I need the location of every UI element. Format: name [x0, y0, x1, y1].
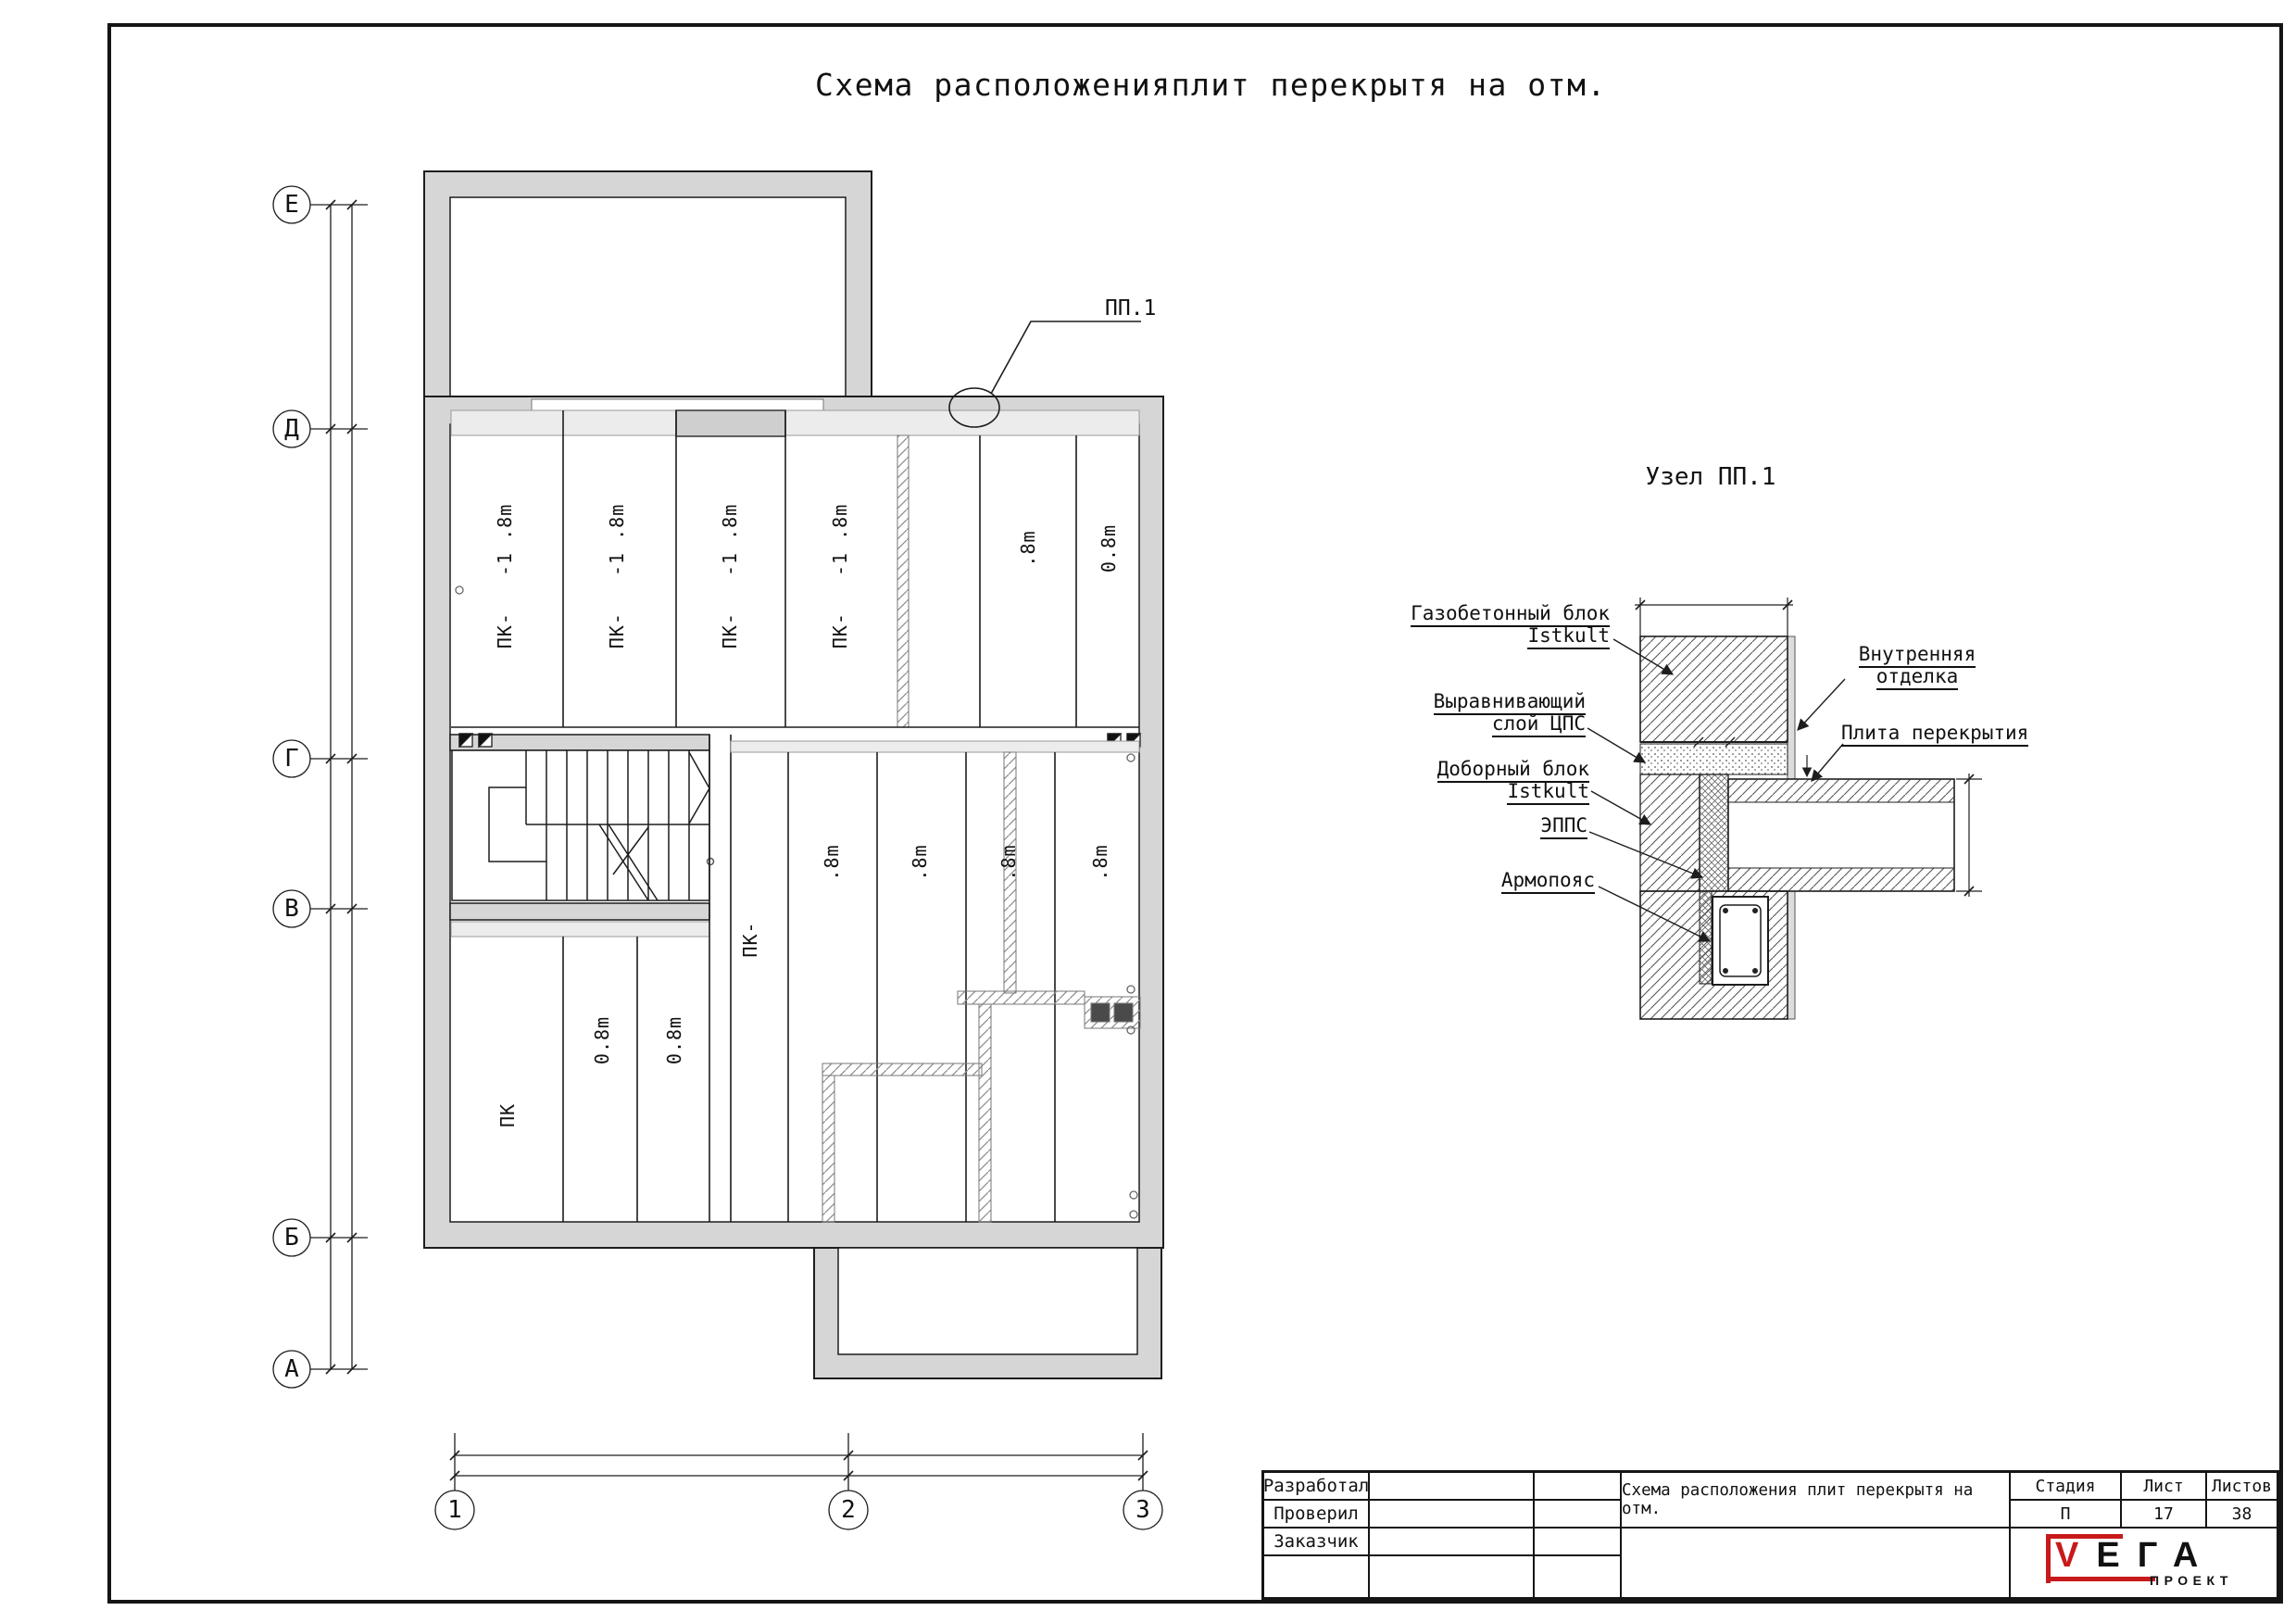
axis-col-2: 2	[828, 1491, 869, 1529]
slab-label: .8m	[909, 844, 931, 880]
vega-logo-v: V	[2055, 1536, 2096, 1575]
detail-label-armo: Армопояс	[1317, 869, 1595, 891]
axis-row-A: А	[271, 1351, 312, 1388]
vega-logo-underline	[2046, 1577, 2155, 1581]
tb-empty-cell	[1264, 1556, 1370, 1597]
axis-col-3: 3	[1123, 1491, 1163, 1529]
tb-developed-label: Разработал	[1264, 1473, 1370, 1501]
title-block: Разработал Проверил Заказчик Схема распо…	[1261, 1470, 2279, 1600]
slab-label: 0.8m	[1098, 524, 1120, 572]
tb-empty-cell	[1622, 1529, 2011, 1597]
slab-label: 0.8m	[663, 1016, 685, 1064]
vega-logo-rest: ЕГА	[2096, 1536, 2215, 1575]
detail-label-epps: ЭППС	[1310, 814, 1587, 837]
screed-layer	[1640, 744, 1788, 774]
tb-empty-cell	[1370, 1473, 1535, 1501]
axis-row-G: Г	[271, 740, 312, 777]
floor-plan	[424, 171, 1163, 1378]
detail-label-screed: Выравнивающий слой ЦПС	[1308, 690, 1586, 735]
tb-checked-label: Проверил	[1264, 1501, 1370, 1529]
detail-label-gas-block: Газобетонный блок Istkult	[1332, 602, 1610, 647]
axis-col-1: 1	[434, 1491, 475, 1529]
tb-empty-cell	[1370, 1556, 1535, 1597]
detail-label-add-block: Доборный блок Istkult	[1311, 758, 1589, 802]
armo-belt	[1713, 897, 1768, 985]
slab-label: .8m	[1089, 844, 1111, 880]
slab-label: ПК-	[739, 921, 761, 957]
slab-label: .8m	[821, 844, 843, 880]
slab-label: ПК- -1 .8m	[494, 504, 516, 649]
epps-layer	[1700, 774, 1728, 891]
tb-empty-cell	[1535, 1556, 1622, 1597]
tb-empty-cell	[1535, 1473, 1622, 1501]
slab-label: ПК- -1 .8m	[719, 504, 741, 649]
detail-label-finish: Внутренняя отделка	[1838, 643, 1996, 687]
vega-logo-subtitle: ПРОЕКТ	[2150, 1573, 2233, 1588]
vega-logo: VЕГА ПРОЕКТ	[2011, 1529, 2277, 1597]
detail-title: Узел ПП.1	[1632, 463, 1789, 491]
tb-empty-cell	[1370, 1529, 1535, 1556]
tb-sheets-value: 38	[2207, 1501, 2277, 1529]
callout-label: ПП.1	[1105, 296, 1156, 321]
slab-label: .8m	[1017, 530, 1039, 566]
tb-sheet-value: 17	[2122, 1501, 2207, 1529]
axis-row-B: Б	[271, 1219, 312, 1256]
axis-row-V: В	[271, 890, 312, 927]
tb-stage-value: П	[2011, 1501, 2122, 1529]
slab-label: ПК- -1 .8m	[606, 504, 628, 649]
tb-sheets-label: Листов	[2207, 1473, 2277, 1501]
staircase	[452, 750, 714, 900]
col-axes	[435, 1433, 1162, 1529]
tb-empty-cell	[1535, 1501, 1622, 1529]
tb-sheet-label: Лист	[2122, 1473, 2207, 1501]
drawing-sheet: Схема расположенияплит перекрытя на отм.	[0, 0, 2296, 1623]
tb-stage-label: Стадия	[2011, 1473, 2122, 1501]
slab-label: 0.8m	[591, 1016, 613, 1064]
tb-customer-label: Заказчик	[1264, 1529, 1370, 1556]
tb-empty-cell	[1370, 1501, 1535, 1529]
tb-empty-cell	[1535, 1529, 1622, 1556]
floor-slab	[1728, 779, 1954, 891]
slab-label: ПК- -1 .8m	[829, 504, 851, 649]
detail-label-slab: Плита перекрытия	[1841, 722, 2028, 744]
slab-label: .8m	[997, 844, 1020, 880]
gas-block	[1640, 636, 1788, 742]
axis-row-E: Е	[271, 186, 312, 223]
plan-and-detail-linework	[0, 0, 2296, 1623]
addition-block	[1640, 774, 1700, 891]
axis-row-D: Д	[271, 410, 312, 447]
tb-doc-title: Схема расположения плит перекрытя на отм…	[1622, 1473, 2011, 1529]
upper-slab-band	[451, 410, 1139, 436]
slab-label: ПК	[496, 1103, 519, 1127]
row-axes	[273, 186, 368, 1388]
